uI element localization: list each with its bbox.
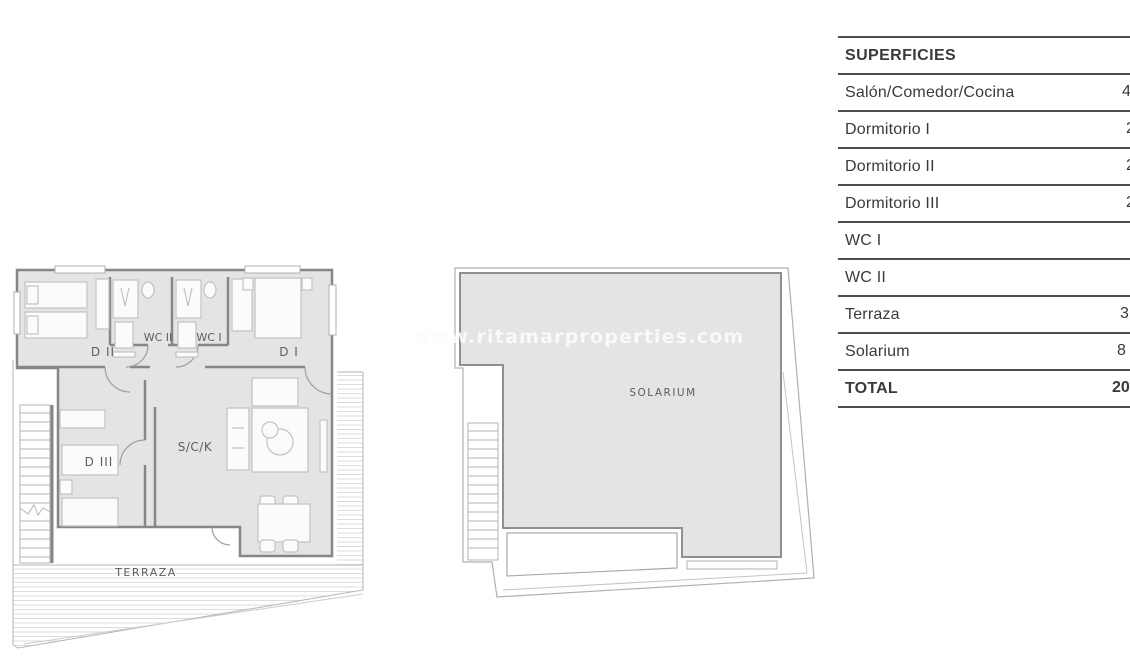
table-row: Dormitorio II 2 [838,147,1130,184]
row-value: 4 [1122,83,1130,101]
apartment-plan: D II WC II WC I D I D III S/C/K TERRAZA [13,266,363,648]
row-label: Dormitorio III [838,195,939,213]
row-label: Dormitorio II [838,158,935,176]
stairs-right [468,423,498,560]
table-row: WC II [838,258,1130,295]
room-label-wc1: WC I [196,331,221,344]
furniture-d1 [232,278,312,338]
row-label: TOTAL [838,380,898,398]
room-label-d2: D II [91,345,115,359]
table-row: Dormitorio I 2 [838,110,1130,147]
table-total-row: TOTAL 20 [838,369,1130,408]
solarium-plan: SOLARIUM [455,268,814,597]
solarium-ledge [687,561,777,569]
row-value: 8 [1117,342,1126,360]
watermark-text: www.ritamarproperties.com [413,326,744,348]
table-row: Solarium 8 [838,332,1130,369]
table-header-row: SUPERFICIES [838,36,1130,73]
solarium-opening [507,533,677,576]
solarium-slab [460,273,781,557]
room-label-d1: D I [279,345,299,359]
row-label: Terraza [838,306,900,324]
table-row: WC I [838,221,1130,258]
row-label: Dormitorio I [838,121,930,139]
row-label: WC II [838,269,886,287]
row-label: Solarium [838,343,910,361]
room-label-d3: D III [85,455,114,469]
room-label-sck: S/C/K [178,440,213,454]
stairs-left [20,405,52,563]
surfaces-table: SUPERFICIES Salón/Comedor/Cocina 4 Dormi… [838,36,1130,408]
row-value: 2 [1126,120,1130,138]
row-value: 2 [1126,157,1130,175]
table-row: Salón/Comedor/Cocina 4 [838,73,1130,110]
row-value: 2 [1126,194,1130,212]
furniture-d2 [25,279,109,338]
table-header: SUPERFICIES [838,47,956,65]
room-label-terraza: TERRAZA [114,566,177,579]
table-row: Dormitorio III 2 [838,184,1130,221]
row-value: 3 [1120,305,1129,323]
table-row: Terraza 3 [838,295,1130,332]
row-label: Salón/Comedor/Cocina [838,84,1014,102]
row-label: WC I [838,232,881,250]
row-value: 20 [1112,379,1130,397]
room-label-solarium: SOLARIUM [629,387,696,399]
room-label-wc2: WC II [144,331,173,344]
